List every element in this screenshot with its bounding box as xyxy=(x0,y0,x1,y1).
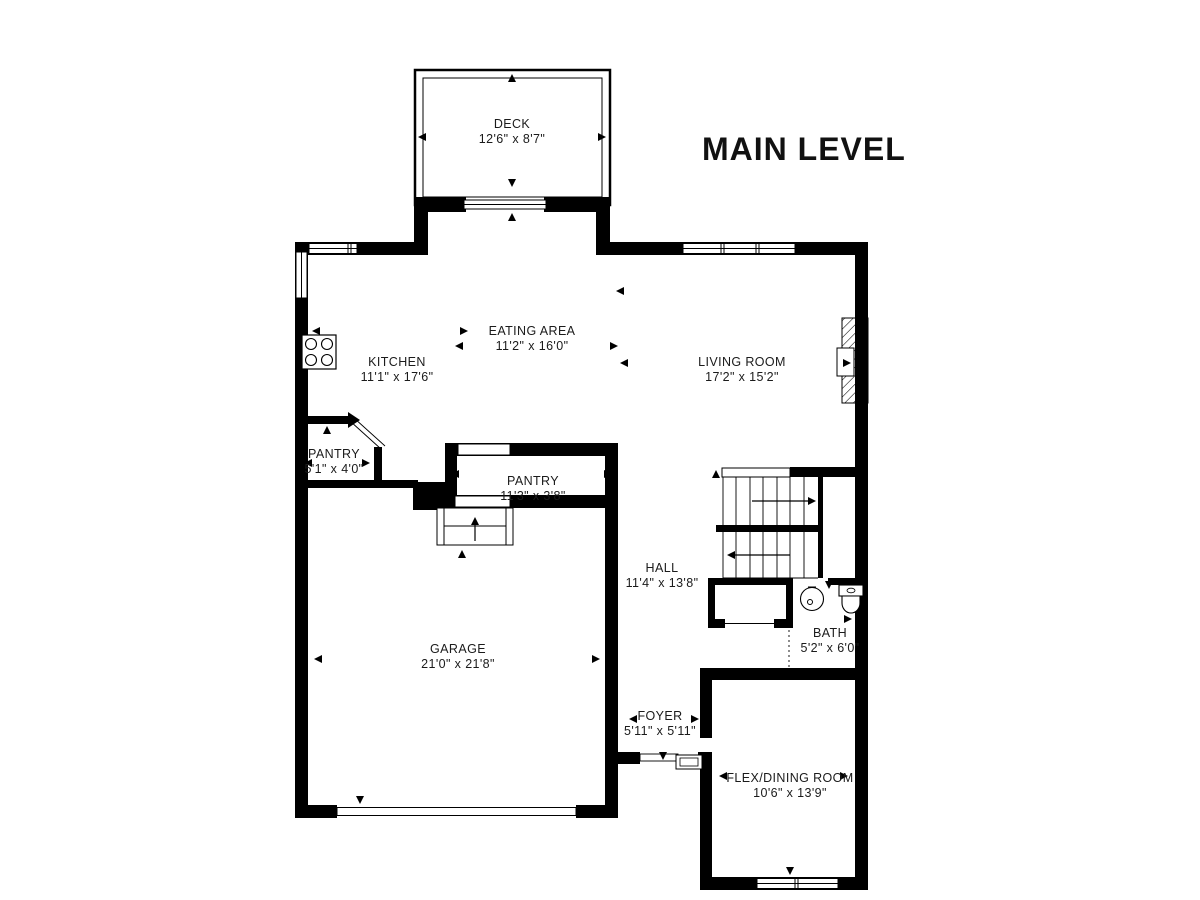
room-dims: 5'1" x 4'0" xyxy=(304,462,363,477)
living-room-window xyxy=(683,244,795,254)
room-label-living-room: LIVING ROOM 17'2" x 15'2" xyxy=(698,355,786,385)
garage-steps-icon xyxy=(437,508,513,545)
flex-room-window xyxy=(757,879,838,889)
room-name: GARAGE xyxy=(421,642,495,657)
stove-icon xyxy=(302,335,336,369)
garage-right-wall xyxy=(605,443,618,818)
room-label-garage: GARAGE 21'0" x 21'8" xyxy=(421,642,495,672)
room-label-foyer: FOYER 5'11" x 5'11" xyxy=(624,709,696,739)
room-dims: 21'0" x 21'8" xyxy=(421,657,495,672)
room-name: PANTRY xyxy=(304,447,363,462)
room-label-flex-dining: FLEX/DINING ROOM 10'6" x 13'9" xyxy=(726,771,853,801)
room-label-pantry-small: PANTRY 5'1" x 4'0" xyxy=(304,447,363,477)
floor-plan-canvas: MAIN LEVEL DECK 12'6" x 8'7" EATING AREA… xyxy=(0,0,1200,900)
room-label-hall: HALL 11'4" x 13'8" xyxy=(626,561,699,591)
fireplace-icon xyxy=(837,318,868,403)
garage-door xyxy=(337,808,576,816)
room-label-eating-area: EATING AREA 11'2" x 16'0" xyxy=(489,324,576,354)
room-dims: 10'6" x 13'9" xyxy=(726,786,853,801)
sink-icon xyxy=(801,587,824,611)
room-dims: 11'1" x 17'6" xyxy=(361,370,434,385)
room-label-bath: BATH 5'2" x 6'0" xyxy=(800,626,859,656)
room-name: HALL xyxy=(626,561,699,576)
room-name: LIVING ROOM xyxy=(698,355,786,370)
room-dims: 11'4" x 13'8" xyxy=(626,576,699,591)
room-name: PANTRY xyxy=(500,474,565,489)
kitchen-top-window xyxy=(309,244,357,254)
room-label-kitchen: KITCHEN 11'1" x 17'6" xyxy=(361,355,434,385)
room-name: KITCHEN xyxy=(361,355,434,370)
entry-step-icon xyxy=(676,755,702,769)
room-dims: 17'2" x 15'2" xyxy=(698,370,786,385)
deck-sliding-door xyxy=(464,200,546,209)
room-name: BATH xyxy=(800,626,859,641)
staircase-icon xyxy=(716,467,855,578)
room-dims: 5'2" x 6'0" xyxy=(800,641,859,656)
hall-closet-walls xyxy=(708,578,855,628)
deck-outline xyxy=(414,70,610,255)
room-dims: 11'3" x 3'8" xyxy=(500,489,565,504)
room-label-deck: DECK 12'6" x 8'7" xyxy=(479,117,545,147)
room-dims: 5'11" x 5'11" xyxy=(624,724,696,739)
room-label-pantry-long: PANTRY 11'3" x 3'8" xyxy=(500,474,565,504)
front-door xyxy=(640,754,678,761)
room-name: EATING AREA xyxy=(489,324,576,339)
room-dims: 11'2" x 16'0" xyxy=(489,339,576,354)
floor-plan-drawing xyxy=(0,0,1200,900)
room-name: FLEX/DINING ROOM xyxy=(726,771,853,786)
kitchen-side-window xyxy=(296,252,307,298)
plan-title: MAIN LEVEL xyxy=(702,131,906,168)
room-dims: 12'6" x 8'7" xyxy=(479,132,545,147)
room-name: FOYER xyxy=(624,709,696,724)
room-name: DECK xyxy=(479,117,545,132)
